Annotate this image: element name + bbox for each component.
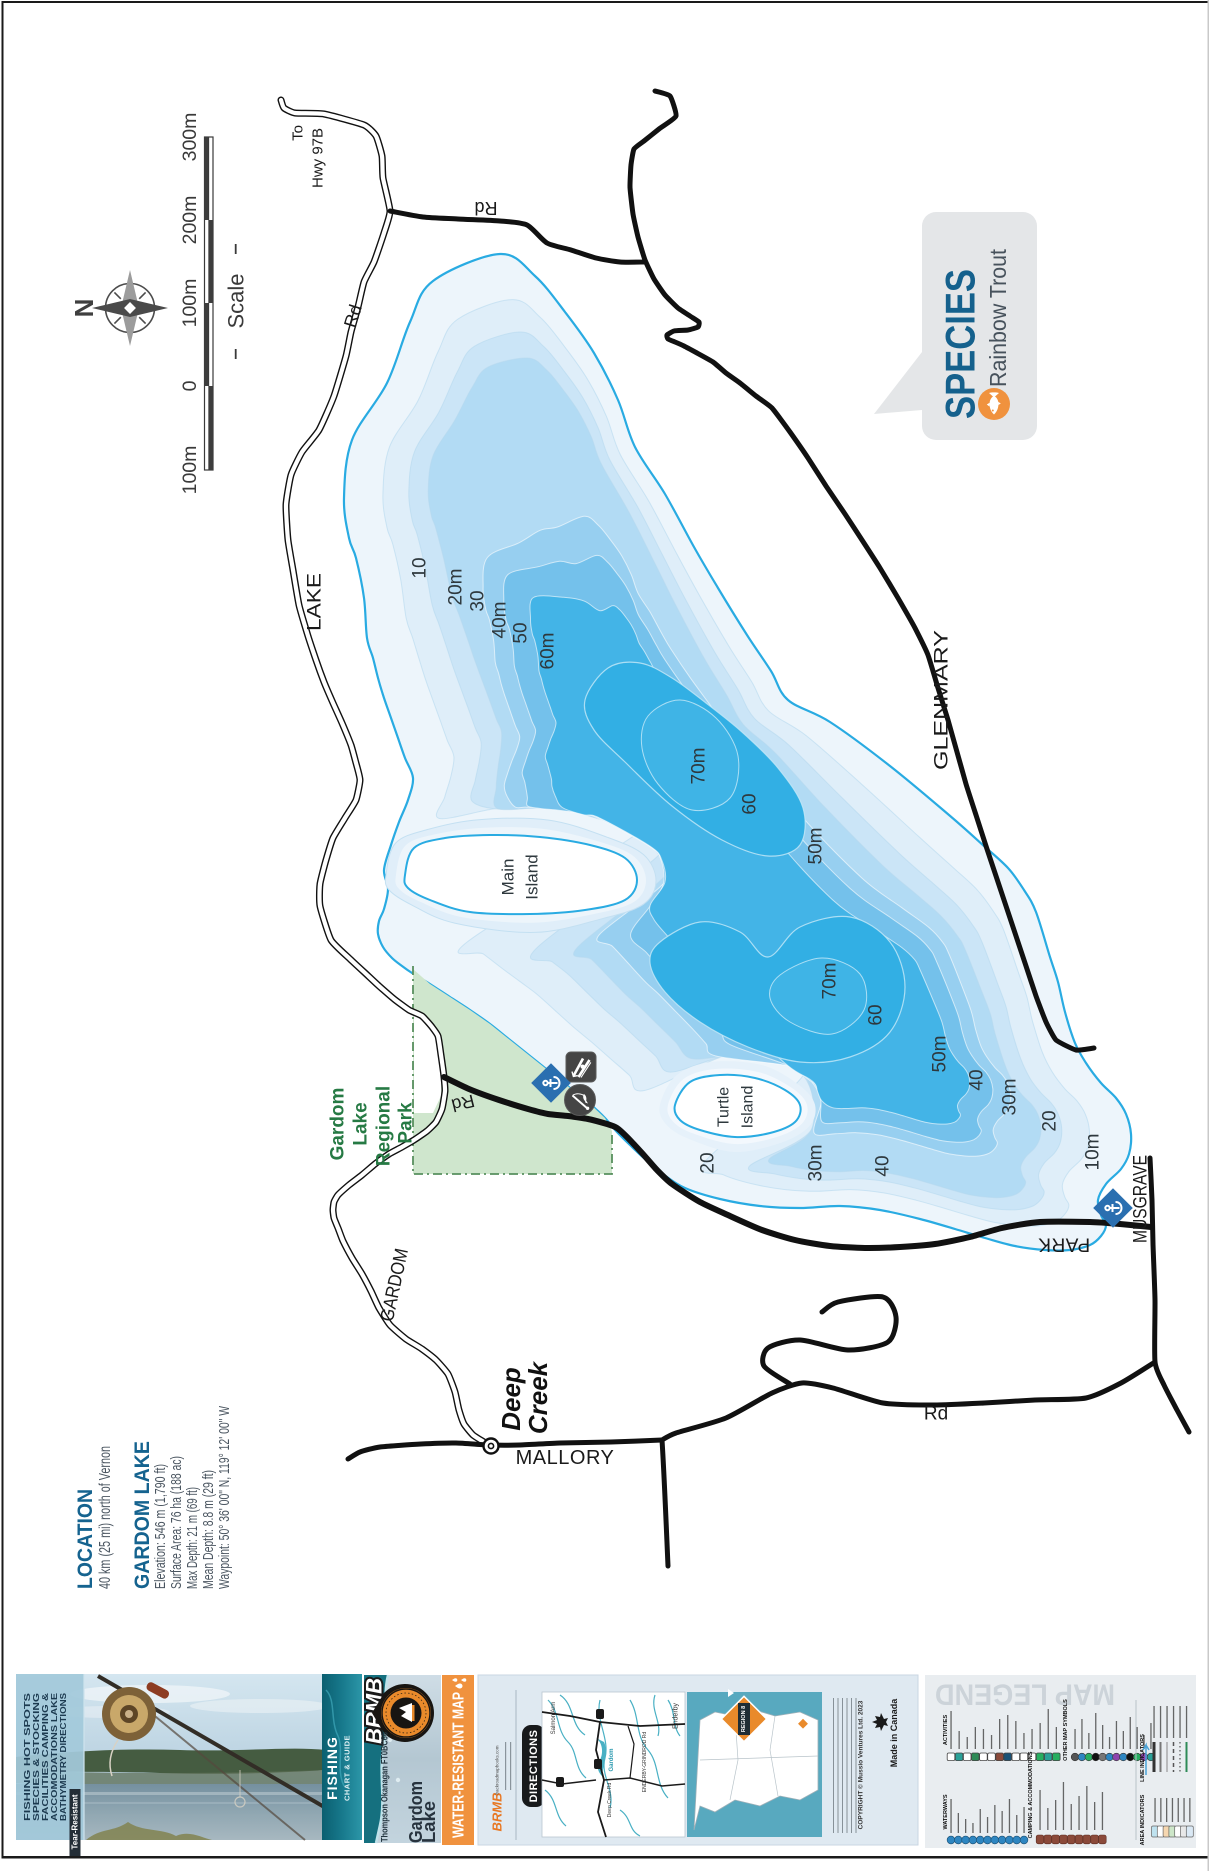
svg-text:20: 20 (698, 1152, 719, 1173)
svg-text:WATER-RESISTANT MAP: WATER-RESISTANT MAP (451, 1692, 468, 1838)
svg-text:Creek: Creek (523, 1360, 553, 1434)
svg-text:Made in Canada: Made in Canada (889, 1698, 899, 1768)
svg-text:Gardom: Gardom (609, 1748, 615, 1771)
svg-text:Island: Island (740, 1086, 757, 1129)
svg-text:LAKE: LAKE (305, 573, 326, 631)
svg-text:70m: 70m (689, 748, 710, 785)
svg-text:FISHING: FISHING (324, 1736, 340, 1800)
svg-text:Lake: Lake (419, 1801, 439, 1843)
svg-text:50m: 50m (930, 1036, 951, 1073)
svg-text:Gardom: Gardom (328, 1088, 349, 1161)
svg-text:OTHER MAP SYMBOLS: OTHER MAP SYMBOLS (1063, 1699, 1069, 1761)
svg-text:REGION 8: REGION 8 (741, 1706, 747, 1732)
svg-text:ENDERBY-GRINDROD Rd: ENDERBY-GRINDROD Rd (642, 1732, 648, 1793)
svg-text:Regional: Regional (374, 1086, 395, 1166)
svg-text:SPECIES: SPECIES (937, 269, 984, 419)
svg-text:40: 40 (873, 1155, 894, 1176)
svg-text:backroadmapbooks.com: backroadmapbooks.com (495, 1745, 500, 1794)
svg-text:Salmon Arm: Salmon Arm (551, 1702, 557, 1735)
svg-text:DIRECTIONS: DIRECTIONS (528, 1730, 540, 1803)
svg-text:Rainbow Trout: Rainbow Trout (985, 248, 1011, 387)
svg-text:Max Depth: 21 m (69 ft): Max Depth: 21 m (69 ft) (184, 1487, 201, 1589)
svg-text:MALLORY: MALLORY (516, 1447, 615, 1469)
svg-text:MAP LEGEND: MAP LEGEND (935, 1678, 1115, 1711)
svg-text:Turtle: Turtle (716, 1087, 733, 1127)
svg-text:70m: 70m (820, 963, 841, 1000)
svg-text:PARK: PARK (1038, 1234, 1090, 1255)
svg-text:GARDOM LAKE: GARDOM LAKE (131, 1441, 154, 1589)
svg-text:Thompson Okanagan FT0BC66: Thompson Okanagan FT0BC66 (380, 1732, 391, 1842)
svg-text:Waypoint: 50° 36' 00" N, 119°: Waypoint: 50° 36' 00" N, 119° 12' 00" W (216, 1405, 233, 1589)
svg-text:WATERWAYS: WATERWAYS (943, 1794, 949, 1829)
svg-text:Island: Island (523, 854, 542, 899)
svg-text:Mean Depth: 8.8 m (29 ft): Mean Depth: 8.8 m (29 ft) (200, 1470, 217, 1589)
svg-text:BATHYMETRY DIRECTIONS: BATHYMETRY DIRECTIONS (58, 1693, 68, 1821)
svg-text:Park: Park (396, 1102, 417, 1144)
svg-text:AREA INDICATORS: AREA INDICATORS (1140, 1794, 1146, 1845)
svg-text:To: To (290, 125, 307, 141)
svg-text:20m: 20m (446, 569, 467, 606)
svg-text:MUSGRAVE: MUSGRAVE (1131, 1155, 1152, 1243)
svg-text:Lake: Lake (351, 1102, 372, 1145)
svg-text:Main: Main (499, 859, 518, 896)
svg-text:30m: 30m (1000, 1079, 1021, 1116)
svg-text:LINE INDICATORS: LINE INDICATORS (1140, 1734, 1146, 1782)
svg-text:300m: 300m (179, 113, 201, 162)
svg-text:N: N (69, 299, 99, 318)
svg-text:10: 10 (410, 557, 431, 578)
svg-text:Surface Area: 76 ha (188 ac): Surface Area: 76 ha (188 ac) (168, 1456, 185, 1589)
svg-text:10m: 10m (1083, 1134, 1104, 1171)
svg-text:60m: 60m (538, 633, 559, 670)
svg-text:Enderby: Enderby (673, 1702, 680, 1729)
svg-text:40: 40 (967, 1069, 988, 1090)
svg-text:Tear-Resistant: Tear-Resistant (71, 1794, 80, 1849)
svg-text:CHART & GUIDE: CHART & GUIDE (343, 1735, 352, 1801)
svg-text:50: 50 (511, 622, 532, 643)
svg-text:60: 60 (740, 793, 761, 814)
svg-text:60: 60 (866, 1004, 887, 1025)
svg-text:Hwy 97B: Hwy 97B (310, 128, 327, 188)
svg-text:Rd: Rd (474, 198, 497, 218)
svg-text:0: 0 (179, 380, 201, 391)
svg-text:Deep: Deep (496, 1367, 526, 1431)
svg-text:Elevation: 546 m (1,790 ft): Elevation: 546 m (1,790 ft) (152, 1464, 169, 1589)
svg-text:BRMB: BRMB (490, 1793, 505, 1832)
svg-text:30: 30 (468, 590, 489, 611)
svg-text:30m: 30m (806, 1145, 827, 1182)
svg-text:GLENMARY: GLENMARY (932, 630, 953, 770)
svg-text:40 km (25 mi) north of Vernon: 40 km (25 mi) north of Vernon (97, 1446, 114, 1589)
svg-text:CAMPING & ACCOMMODATIONS: CAMPING & ACCOMMODATIONS (1028, 1751, 1034, 1838)
svg-text:40m: 40m (490, 602, 511, 639)
svg-text:ACTIVITIES: ACTIVITIES (943, 1715, 949, 1746)
svg-text:Deep Creek Rd: Deep Creek Rd (607, 1783, 613, 1818)
svg-text:Scale: Scale (224, 273, 249, 328)
svg-text:COPYRIGHT © Mussio Ventures Lt: COPYRIGHT © Mussio Ventures Ltd. 2023 (857, 1700, 865, 1829)
svg-text:50m: 50m (806, 828, 827, 865)
svg-text:20: 20 (1040, 1110, 1061, 1131)
svg-text:LOCATION: LOCATION (74, 1489, 97, 1589)
svg-text:Rd: Rd (924, 1404, 948, 1425)
svg-text:100m: 100m (179, 446, 201, 495)
svg-text:100m: 100m (179, 279, 201, 328)
svg-text:200m: 200m (179, 196, 201, 245)
